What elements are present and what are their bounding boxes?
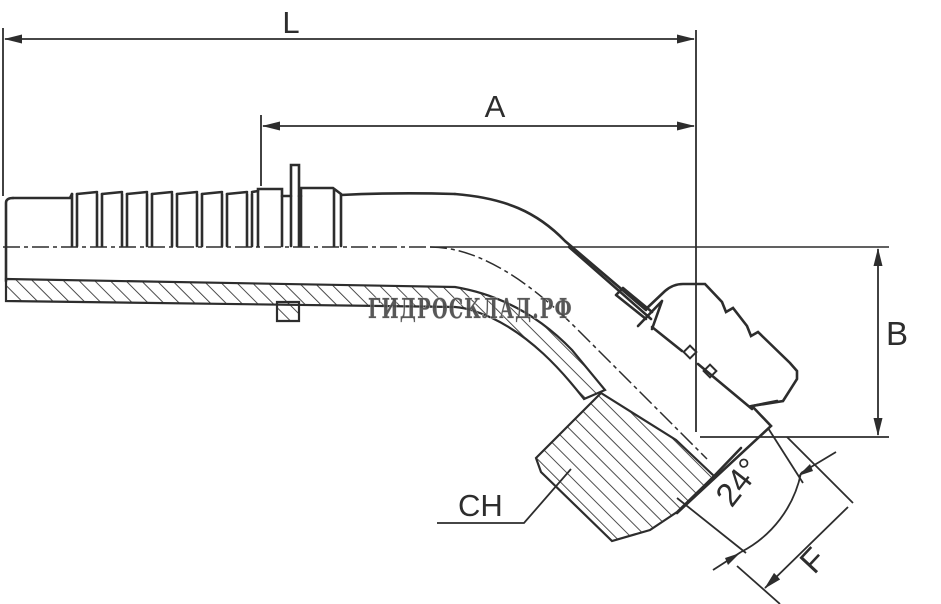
tube-top-edge xyxy=(341,193,455,195)
stop-flange xyxy=(291,165,299,246)
ext-line-F-lower xyxy=(737,566,780,604)
nut-section xyxy=(536,393,714,541)
centerlines xyxy=(3,247,889,459)
nut-flat-inner-line xyxy=(652,327,752,409)
section-hatching xyxy=(6,279,714,541)
stem-end-cap xyxy=(6,198,13,281)
thread-marks xyxy=(684,346,717,378)
dimension-B xyxy=(700,249,889,437)
fitting-drawing-canvas: L A B CH 24° F ГИДРОСКЛАД.РФ xyxy=(0,0,941,604)
barb-tops xyxy=(77,191,258,194)
technical-drawing-45deg-elbow-fitting: L A B CH 24° F ГИДРОСКЛАД.РФ xyxy=(0,0,941,604)
dim-label-A: A xyxy=(485,89,506,124)
hose-stop-collar-1 xyxy=(258,189,282,246)
dim-label-F: F xyxy=(792,540,833,580)
collar-stub-section xyxy=(277,302,299,321)
stem-top-edge xyxy=(13,194,72,198)
dimension-F xyxy=(737,437,853,604)
dim-label-B: B xyxy=(886,315,908,352)
dimension-L xyxy=(3,28,696,432)
ext-line-F-upper xyxy=(787,437,853,503)
watermark-text: ГИДРОСКЛАД.РФ xyxy=(368,294,573,325)
dim-label-CH: CH xyxy=(458,488,503,523)
hose-stop-collar-2 xyxy=(301,188,341,246)
dimension-A xyxy=(261,115,694,186)
dim-label-cone-angle: 24° xyxy=(708,451,768,513)
tube-inner-line xyxy=(569,247,651,319)
barb-teeth xyxy=(72,194,252,246)
dim-label-L: L xyxy=(282,5,299,40)
